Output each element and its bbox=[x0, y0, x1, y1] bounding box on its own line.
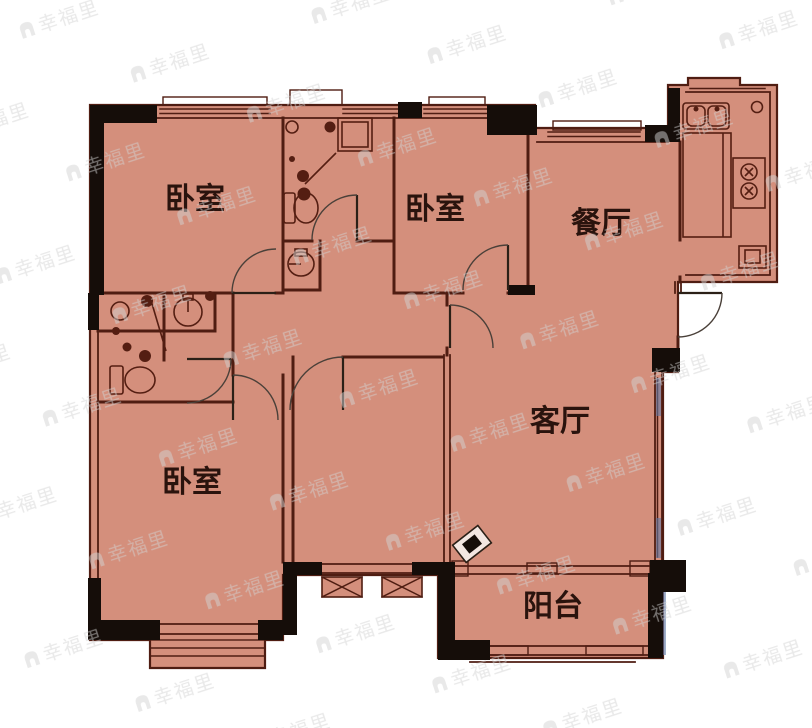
thick-wall bbox=[258, 620, 283, 640]
fixture-dot bbox=[289, 156, 295, 162]
thick-wall bbox=[438, 640, 490, 660]
thick-wall bbox=[88, 293, 99, 330]
window-sill bbox=[163, 97, 267, 105]
thick-wall bbox=[412, 562, 452, 575]
thick-wall bbox=[283, 562, 297, 635]
thick-wall bbox=[90, 105, 104, 295]
fixture-dot bbox=[123, 343, 132, 352]
floor-plan: 卧室 卧室 餐厅 客厅 卧室 阳台 幸福里 幸福里 bbox=[0, 0, 812, 728]
faucet-dot bbox=[694, 107, 699, 112]
room-label-bedroom-1: 卧室 bbox=[165, 182, 225, 217]
fixture-dot bbox=[297, 170, 309, 182]
fixture-dot bbox=[112, 327, 120, 335]
window-glass bbox=[656, 518, 661, 558]
room-label-living: 客厅 bbox=[530, 404, 590, 439]
thick-wall bbox=[487, 105, 537, 135]
floor-plan-svg: 卧室 卧室 餐厅 客厅 卧室 阳台 幸福里 幸福里 bbox=[0, 0, 812, 728]
room-label-bedroom-2: 卧室 bbox=[405, 192, 465, 227]
thick-wall bbox=[668, 88, 680, 142]
thick-wall bbox=[90, 620, 160, 640]
window-sill bbox=[429, 97, 485, 105]
window-sill bbox=[290, 90, 342, 105]
fixture-dot bbox=[139, 350, 151, 362]
faucet-dot bbox=[715, 107, 720, 112]
thick-wall bbox=[652, 348, 680, 372]
thick-wall bbox=[508, 285, 535, 295]
entry-door-arc bbox=[678, 293, 722, 337]
window-glass bbox=[656, 378, 661, 416]
room-label-balcony: 阳台 bbox=[523, 589, 583, 624]
room-label-bedroom-3: 卧室 bbox=[162, 465, 222, 500]
window-glass bbox=[663, 592, 666, 655]
thick-wall bbox=[648, 573, 663, 658]
door-hinge-dot bbox=[205, 291, 215, 301]
room-label-dining: 餐厅 bbox=[571, 206, 631, 241]
thick-wall bbox=[398, 102, 422, 118]
shower-head-dot bbox=[325, 122, 336, 133]
